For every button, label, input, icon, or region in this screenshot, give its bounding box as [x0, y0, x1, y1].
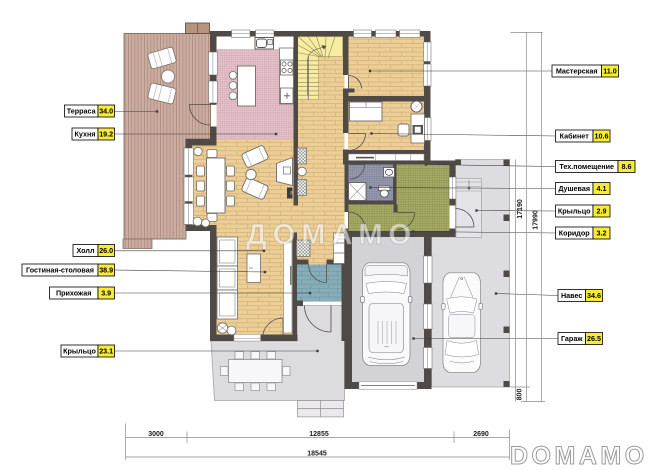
svg-text:38.9: 38.9	[99, 266, 113, 275]
svg-text:3.9: 3.9	[101, 289, 111, 298]
svg-text:Крыльцо: Крыльцо	[63, 347, 96, 356]
svg-text:17190: 17190	[517, 199, 524, 219]
svg-text:Гараж: Гараж	[561, 334, 583, 343]
svg-text:26.0: 26.0	[99, 246, 113, 255]
svg-text:Кабинет: Кабинет	[560, 132, 590, 141]
svg-text:8.6: 8.6	[622, 162, 632, 171]
svg-text:Кухня: Кухня	[74, 130, 95, 139]
svg-text:Прихожая: Прихожая	[56, 289, 91, 298]
svg-text:Мастерская: Мастерская	[556, 67, 598, 76]
svg-text:2.9: 2.9	[597, 207, 607, 216]
svg-text:DOMAMO: DOMAMO	[510, 442, 648, 470]
svg-text:Крыльцо: Крыльцо	[558, 207, 591, 216]
svg-text:18545: 18545	[307, 451, 327, 458]
svg-text:17990: 17990	[533, 210, 540, 230]
svg-text:ДОМАМО: ДОМАМО	[246, 219, 417, 251]
svg-text:Терраса: Терраса	[67, 107, 97, 116]
svg-text:10.6: 10.6	[595, 132, 609, 141]
svg-text:11.0: 11.0	[603, 67, 617, 76]
svg-text:26.5: 26.5	[587, 334, 601, 343]
svg-text:19.2: 19.2	[99, 130, 113, 139]
svg-text:12855: 12855	[309, 431, 329, 438]
svg-text:2690: 2690	[473, 431, 489, 438]
svg-text:Холл: Холл	[76, 246, 94, 255]
svg-text:4.1: 4.1	[597, 184, 607, 193]
svg-text:23.1: 23.1	[99, 347, 113, 356]
svg-text:3000: 3000	[148, 431, 164, 438]
svg-text:3.2: 3.2	[597, 229, 607, 238]
svg-text:Гостиная-столовая: Гостиная-столовая	[26, 266, 94, 275]
svg-text:800: 800	[517, 389, 524, 401]
svg-text:Коридор: Коридор	[559, 229, 591, 238]
svg-text:Тех.помещение: Тех.помещение	[559, 162, 614, 171]
svg-text:34.0: 34.0	[99, 107, 113, 116]
svg-text:Душевая: Душевая	[558, 184, 590, 193]
svg-text:Навес: Навес	[561, 291, 582, 300]
svg-text:34.6: 34.6	[587, 291, 601, 300]
